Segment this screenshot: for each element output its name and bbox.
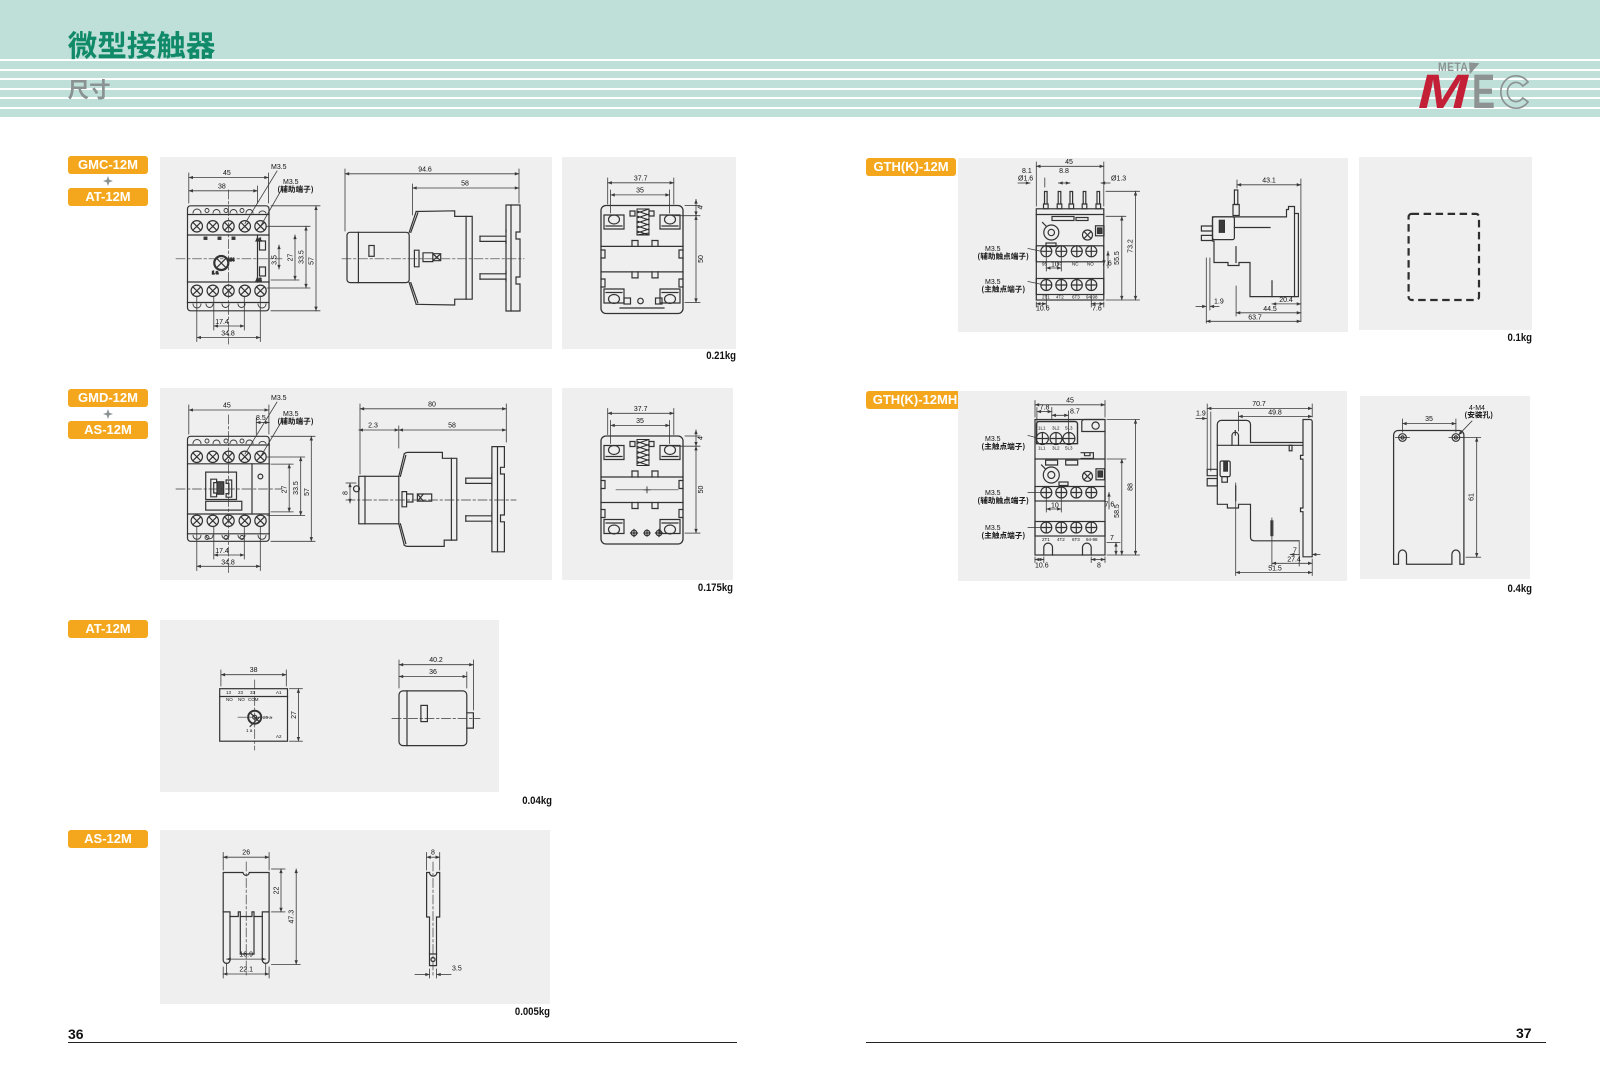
svg-text:1L1: 1L1	[1038, 426, 1046, 431]
svg-text:8: 8	[343, 491, 350, 495]
svg-text:1 a: 1 a	[246, 728, 253, 733]
svg-text:50: 50	[698, 255, 705, 263]
svg-text:2.3: 2.3	[368, 423, 378, 430]
svg-text:23: 23	[238, 690, 244, 695]
svg-text:36: 36	[429, 669, 437, 676]
svg-text:33.5: 33.5	[293, 481, 300, 495]
svg-text:10: 10	[1051, 503, 1059, 510]
svg-text:45: 45	[1065, 159, 1073, 166]
svg-text:37.7: 37.7	[634, 175, 648, 182]
svg-text:7.8: 7.8	[1040, 405, 1050, 412]
svg-text:A1: A1	[256, 237, 262, 242]
svg-text:E: E	[1472, 64, 1495, 114]
svg-text:1L1: 1L1	[1038, 446, 1046, 451]
svg-text:Ø1.3: Ø1.3	[1111, 176, 1126, 183]
svg-text:33.5: 33.5	[299, 250, 306, 264]
svg-text:6T3: 6T3	[1072, 295, 1080, 300]
svg-text:22: 22	[274, 887, 281, 895]
svg-text:61: 61	[1469, 493, 1476, 501]
svg-text:55.5: 55.5	[1114, 251, 1121, 265]
svg-text:17.4: 17.4	[215, 319, 229, 326]
svg-text:94-98: 94-98	[1086, 295, 1098, 300]
svg-text:13: 13	[226, 690, 232, 695]
svg-text:8: 8	[431, 850, 435, 857]
svg-text:M3.5: M3.5	[271, 164, 287, 171]
svg-text:40.2: 40.2	[429, 657, 443, 664]
svg-text:16.9: 16.9	[239, 952, 253, 959]
svg-text:A1: A1	[276, 690, 282, 695]
svg-text:3.5: 3.5	[272, 255, 279, 265]
svg-text:4: 4	[698, 205, 705, 209]
svg-text:57: 57	[309, 257, 316, 265]
svg-text:8.8: 8.8	[1059, 168, 1069, 175]
svg-text:27.4: 27.4	[1287, 556, 1301, 563]
svg-text:58: 58	[461, 181, 469, 188]
svg-text:1 a: 1 a	[212, 270, 219, 275]
svg-text:20.4: 20.4	[1279, 297, 1293, 304]
svg-text:NO: NO	[238, 697, 245, 702]
svg-text:94-98: 94-98	[1086, 537, 1098, 542]
svg-text:38: 38	[250, 667, 258, 674]
svg-text:NC: NC	[1072, 262, 1079, 267]
svg-text:4T2: 4T2	[1056, 295, 1064, 300]
svg-text:NO: NO	[226, 697, 233, 702]
svg-text:COM: COM	[248, 697, 259, 702]
svg-text:58.5: 58.5	[1114, 504, 1121, 518]
svg-text:38: 38	[218, 184, 226, 191]
svg-text:26: 26	[242, 850, 250, 857]
svg-text:Ø1.6: Ø1.6	[1018, 176, 1033, 183]
svg-text:3L2: 3L2	[1052, 426, 1060, 431]
svg-text:73.2: 73.2	[1128, 239, 1135, 253]
svg-text:63.7: 63.7	[1248, 314, 1262, 321]
svg-text:4T2: 4T2	[1057, 537, 1065, 542]
svg-text:34.8: 34.8	[221, 331, 235, 338]
svg-text:51.5: 51.5	[1268, 566, 1282, 573]
svg-text:35: 35	[636, 418, 644, 425]
svg-text:8: 8	[1097, 563, 1101, 570]
svg-text:M3.5: M3.5	[985, 279, 1001, 286]
svg-text:70.7: 70.7	[1252, 401, 1266, 408]
svg-text:4: 4	[698, 436, 705, 440]
svg-text:10: 10	[1051, 262, 1059, 269]
svg-text:8.5: 8.5	[256, 415, 266, 422]
svg-text:58: 58	[448, 423, 456, 430]
svg-text:3L2: 3L2	[1052, 446, 1060, 451]
svg-text:50: 50	[698, 486, 705, 494]
svg-text:5L3: 5L3	[1065, 426, 1073, 431]
svg-text:37.7: 37.7	[634, 406, 648, 413]
svg-text:6T3: 6T3	[1072, 537, 1080, 542]
svg-text:7.6: 7.6	[1092, 306, 1102, 313]
svg-text:45: 45	[223, 403, 231, 410]
svg-text:M3.5: M3.5	[283, 411, 299, 418]
svg-text:47.3: 47.3	[289, 910, 296, 924]
svg-text:7: 7	[1293, 548, 1297, 555]
svg-text:43.1: 43.1	[1262, 177, 1276, 184]
svg-text:2T1: 2T1	[1042, 537, 1050, 542]
svg-text:22.1: 22.1	[239, 967, 253, 974]
svg-text:27: 27	[282, 486, 289, 494]
svg-text:NO: NO	[1087, 262, 1094, 267]
svg-text:10.6: 10.6	[1036, 306, 1050, 313]
svg-text:M4: M4	[228, 257, 235, 262]
svg-text:8.7: 8.7	[1070, 408, 1080, 415]
svg-text:M3.5: M3.5	[985, 490, 1001, 497]
svg-text:M3.5: M3.5	[271, 395, 287, 402]
svg-text:3.5: 3.5	[452, 966, 462, 973]
svg-text:M3.5: M3.5	[283, 179, 299, 186]
svg-text:A2: A2	[256, 277, 262, 282]
svg-text:5L3: 5L3	[1065, 446, 1073, 451]
svg-text:94.6: 94.6	[418, 167, 432, 174]
svg-text:57: 57	[304, 488, 311, 496]
svg-text:M: M	[1418, 65, 1470, 114]
svg-text:7.6: 7.6	[1105, 502, 1115, 509]
svg-text:1.9: 1.9	[1214, 298, 1224, 305]
svg-text:45: 45	[1066, 398, 1074, 405]
svg-text:17.4: 17.4	[215, 548, 229, 555]
svg-text:80: 80	[428, 401, 436, 408]
svg-text:88: 88	[1128, 483, 1135, 491]
svg-text:8.1: 8.1	[1022, 168, 1032, 175]
svg-text:27: 27	[288, 254, 295, 262]
svg-text:45: 45	[223, 170, 231, 177]
svg-text:M3.5: M3.5	[985, 246, 1001, 253]
svg-text:1.9: 1.9	[1196, 411, 1206, 418]
svg-text:49.8: 49.8	[1268, 409, 1282, 416]
svg-text:10.6: 10.6	[1035, 563, 1049, 570]
svg-text:27: 27	[291, 711, 298, 719]
svg-text:35: 35	[1425, 416, 1433, 423]
svg-text:A2: A2	[276, 734, 282, 739]
svg-text:M3.5: M3.5	[985, 436, 1001, 443]
svg-text:7: 7	[1110, 535, 1114, 542]
svg-text:7.6: 7.6	[1102, 261, 1112, 268]
svg-text:34.8: 34.8	[221, 559, 235, 566]
svg-text:44.5: 44.5	[1263, 306, 1277, 313]
svg-text:M3.5: M3.5	[985, 525, 1001, 532]
svg-text:4-M4: 4-M4	[1469, 405, 1485, 412]
svg-text:35: 35	[636, 187, 644, 194]
